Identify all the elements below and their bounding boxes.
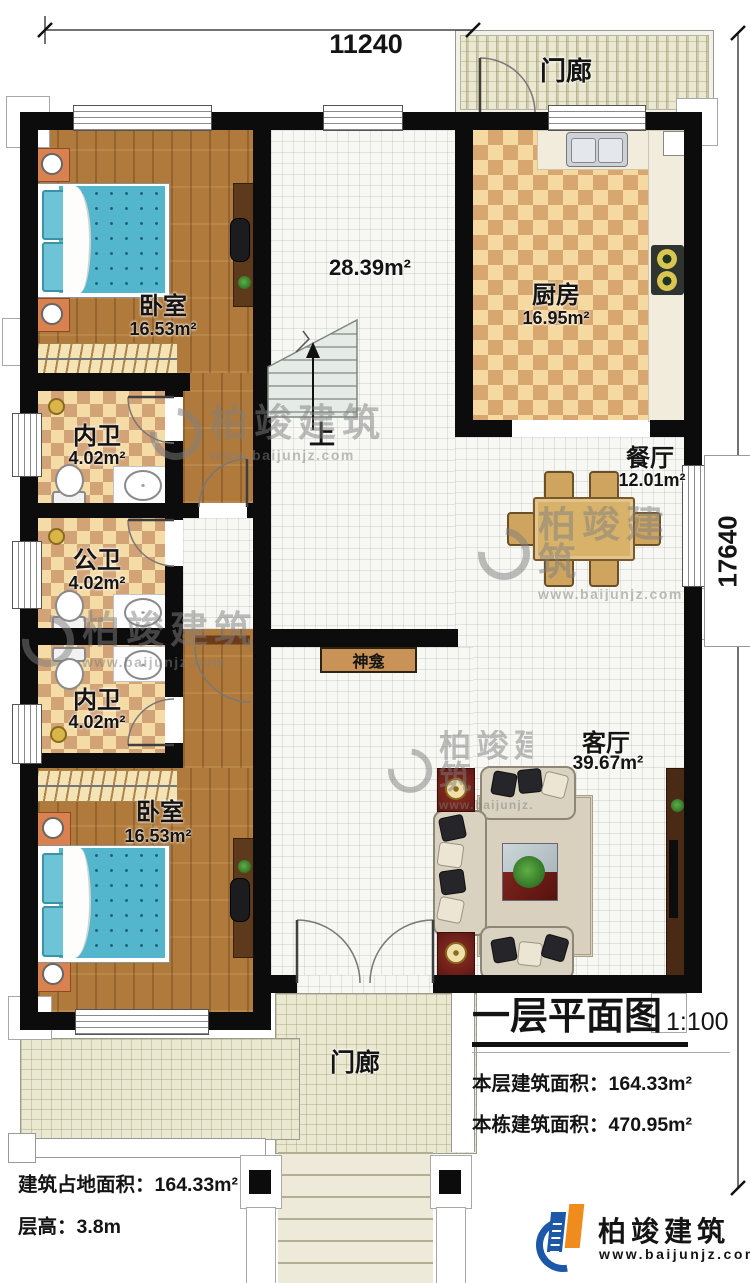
- floor-height-label: 层高：: [18, 1216, 77, 1238]
- floor-height-value: 3.8m: [77, 1216, 121, 1238]
- room-area-bath-middle: 4.02m²: [68, 574, 125, 593]
- room-label-bedroom-bottom: 卧室: [136, 800, 184, 825]
- brand-website: www.baijunjz.com: [599, 1246, 750, 1262]
- footprint-label: 建筑占地面积：: [18, 1174, 155, 1196]
- stairs-up-label: 上: [309, 422, 335, 449]
- room-area-hall: 28.39m²: [329, 256, 411, 279]
- room-area-kitchen: 16.95m²: [522, 309, 589, 328]
- room-area-dining: 12.01m²: [618, 471, 685, 490]
- footprint-value: 164.33m²: [155, 1174, 238, 1196]
- brand-logo: 柏竣建筑 www.baijunjz.com: [536, 1200, 746, 1275]
- room-label-dining: 餐厅: [626, 446, 674, 471]
- title-underline: [472, 1042, 688, 1047]
- building-area-label: 本栋建筑面积：: [472, 1114, 609, 1136]
- dimension-depth-box: 17640: [704, 455, 750, 647]
- room-area-bath-top: 4.02m²: [68, 449, 125, 468]
- brand-logo-icon: [536, 1200, 594, 1270]
- room-label-kitchen: 厨房: [532, 283, 580, 308]
- room-area-bedroom-top: 16.53m²: [129, 320, 196, 339]
- title-block: 一层平面图 1:100 本层建筑面积：164.33m² 本栋建筑面积：470.9…: [472, 998, 750, 1137]
- room-area-bath-bottom: 4.02m²: [68, 713, 125, 732]
- room-area-bedroom-bottom: 16.53m²: [124, 827, 191, 846]
- plan-title: 一层平面图: [472, 998, 662, 1036]
- brand-name: 柏竣建筑: [598, 1210, 730, 1250]
- room-label-porch-top: 门廊: [540, 58, 592, 85]
- floor-area-label: 本层建筑面积：: [472, 1073, 609, 1095]
- floor-area-value: 164.33m²: [609, 1073, 692, 1095]
- title-underline-thin: [472, 1052, 730, 1053]
- room-label-bath-top: 内卫: [73, 424, 121, 449]
- room-label-bedroom-top: 卧室: [139, 294, 187, 319]
- room-area-living: 39.67m²: [573, 754, 644, 774]
- floor-plan: 神龛: [0, 0, 750, 1283]
- room-label-porch-bottom: 门廊: [330, 1050, 380, 1076]
- site-info: 建筑占地面积：164.33m² 层高：3.8m: [18, 1168, 238, 1239]
- dimension-width: 11240: [329, 30, 403, 58]
- building-area-value: 470.95m²: [609, 1114, 692, 1136]
- dimension-depth: 17640: [713, 515, 744, 587]
- room-label-bath-middle: 公卫: [73, 548, 121, 573]
- plan-scale: 1:100: [666, 1009, 729, 1037]
- room-label-bath-bottom: 内卫: [73, 688, 121, 713]
